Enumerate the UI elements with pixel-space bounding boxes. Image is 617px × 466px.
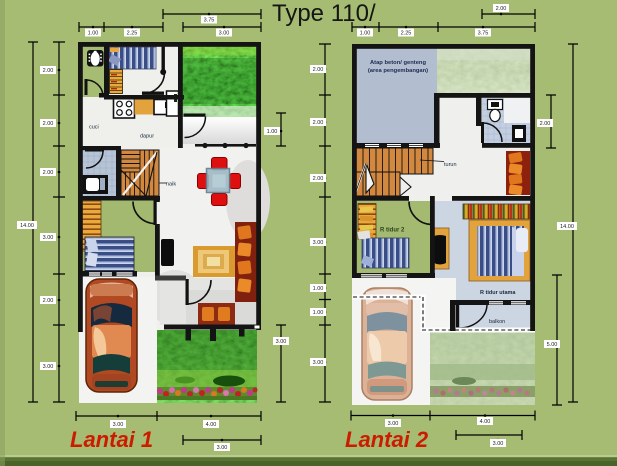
svg-text:3.00: 3.00 bbox=[43, 235, 54, 241]
svg-text:2.00: 2.00 bbox=[496, 6, 507, 12]
svg-text:Lantai 1: Lantai 1 bbox=[70, 427, 153, 452]
svg-text:naik: naik bbox=[166, 182, 176, 188]
svg-text:turun: turun bbox=[444, 162, 457, 168]
svg-text:balkon: balkon bbox=[489, 319, 505, 325]
svg-text:2.00: 2.00 bbox=[313, 176, 324, 182]
svg-text:3.00: 3.00 bbox=[493, 441, 504, 447]
svg-text:R tidur 2: R tidur 2 bbox=[380, 228, 405, 234]
svg-text:2.25: 2.25 bbox=[401, 31, 412, 37]
svg-text:2.00: 2.00 bbox=[43, 121, 54, 127]
svg-text:2.00: 2.00 bbox=[43, 68, 54, 74]
svg-text:1.00: 1.00 bbox=[88, 31, 99, 37]
svg-text:3.00: 3.00 bbox=[219, 31, 230, 37]
svg-text:2.00: 2.00 bbox=[540, 121, 551, 127]
svg-text:R tidur utama: R tidur utama bbox=[480, 290, 516, 296]
svg-text:2.00: 2.00 bbox=[313, 67, 324, 73]
svg-text:dapur: dapur bbox=[140, 134, 154, 140]
svg-text:1.00: 1.00 bbox=[313, 286, 324, 292]
svg-text:14.00: 14.00 bbox=[20, 223, 34, 229]
svg-text:Lantai 2: Lantai 2 bbox=[345, 427, 429, 452]
svg-text:14.00: 14.00 bbox=[560, 224, 574, 230]
svg-text:(area pengembangan): (area pengembangan) bbox=[368, 68, 428, 74]
svg-text:5.00: 5.00 bbox=[547, 342, 558, 348]
svg-text:4.00: 4.00 bbox=[206, 422, 217, 428]
svg-text:1.00: 1.00 bbox=[360, 31, 371, 37]
svg-text:Type 110/: Type 110/ bbox=[272, 0, 376, 27]
svg-text:4.00: 4.00 bbox=[480, 419, 491, 425]
svg-text:cuci: cuci bbox=[89, 125, 99, 131]
svg-text:2.00: 2.00 bbox=[43, 298, 54, 304]
svg-text:3.00: 3.00 bbox=[217, 445, 228, 451]
svg-text:Atap beton/ genteng: Atap beton/ genteng bbox=[370, 60, 426, 66]
svg-text:3.00: 3.00 bbox=[313, 360, 324, 366]
svg-text:3.00: 3.00 bbox=[313, 240, 324, 246]
svg-text:2.00: 2.00 bbox=[313, 120, 324, 126]
svg-text:3.75: 3.75 bbox=[204, 18, 215, 24]
svg-text:3.00: 3.00 bbox=[276, 339, 287, 345]
svg-text:3.75: 3.75 bbox=[478, 31, 489, 37]
svg-text:1.00: 1.00 bbox=[267, 129, 278, 135]
svg-text:2.25: 2.25 bbox=[127, 31, 138, 37]
svg-text:3.00: 3.00 bbox=[43, 364, 54, 370]
svg-text:2.00: 2.00 bbox=[43, 170, 54, 176]
svg-text:1.00: 1.00 bbox=[313, 310, 324, 316]
